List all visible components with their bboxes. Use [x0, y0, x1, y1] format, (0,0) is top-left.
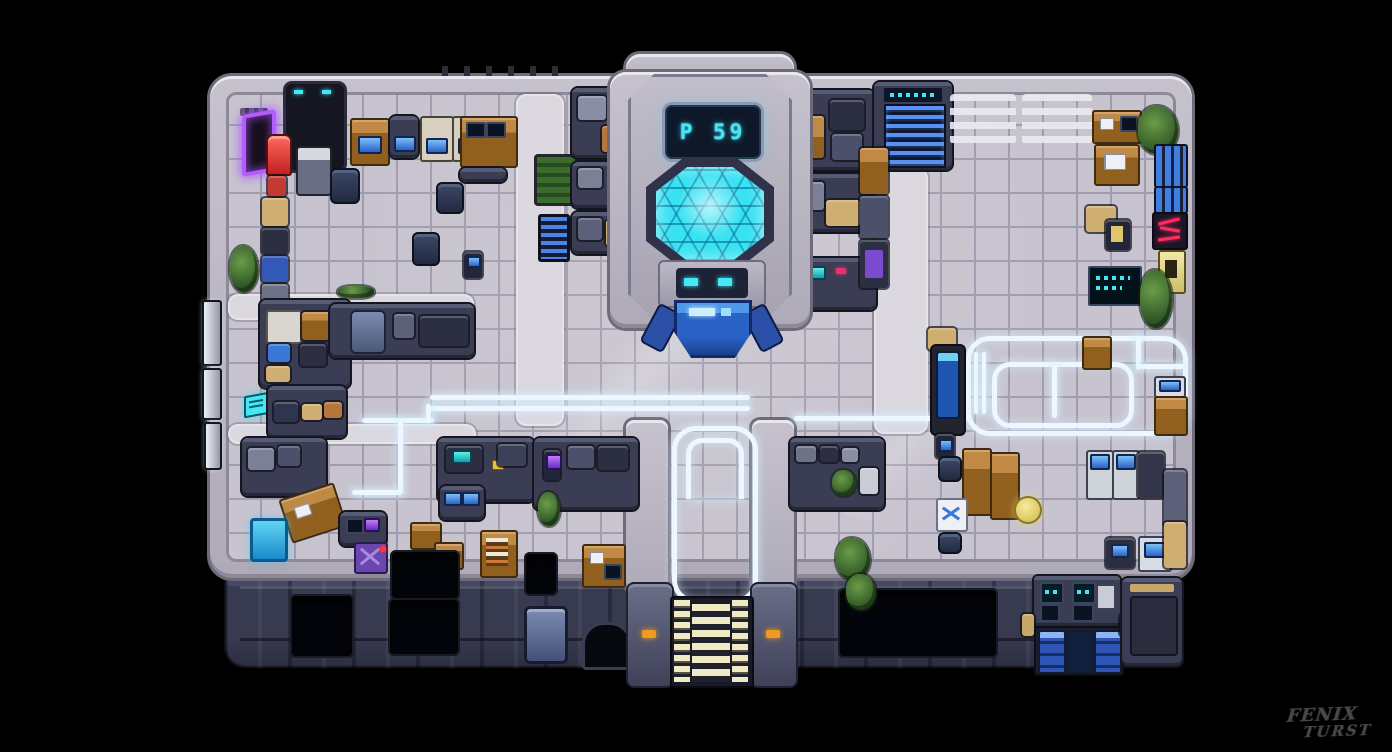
tram-line — [1140, 364, 1184, 369]
storage-locker-small[interactable] — [464, 252, 482, 278]
crate-blue — [268, 344, 290, 362]
holo-track-loop-inner — [992, 362, 1134, 428]
crate-tan — [324, 402, 342, 418]
washer-lid — [1116, 454, 1136, 470]
shelf-blue-bins[interactable] — [1154, 186, 1188, 214]
entrance-tower — [750, 582, 798, 688]
machine — [394, 314, 414, 338]
machine — [578, 168, 602, 188]
roof-antenna-ticks — [442, 66, 562, 76]
side-panel-tan — [1022, 614, 1034, 636]
graffiti-stroke — [1158, 217, 1180, 225]
exterior-module — [202, 300, 222, 366]
paper — [293, 503, 312, 519]
table-white — [936, 498, 968, 532]
sign-lines — [249, 404, 263, 408]
monitor-screen — [426, 138, 448, 154]
appliance — [796, 446, 816, 462]
locker-screen — [1072, 582, 1096, 604]
wall-terminal[interactable] — [1088, 266, 1142, 306]
machine — [578, 218, 602, 240]
monitor-screen — [444, 492, 462, 506]
washer[interactable] — [1086, 450, 1114, 500]
airlock-window — [721, 308, 731, 316]
locker[interactable] — [1094, 630, 1122, 674]
desk — [1094, 144, 1140, 186]
office-chair — [436, 182, 464, 214]
open-book — [1104, 154, 1126, 170]
stair-landing — [884, 88, 942, 102]
entrance-tower — [626, 582, 674, 688]
floor-opening — [390, 550, 460, 600]
large-desk — [460, 116, 518, 168]
cabinet — [832, 134, 862, 160]
holo-table-blue[interactable] — [250, 518, 288, 562]
ceiling-lamp — [294, 90, 303, 94]
machine-white[interactable] — [1154, 376, 1186, 398]
vending-machine[interactable] — [266, 134, 292, 176]
washer-lid — [1090, 454, 1110, 470]
entrance-corridor-outline-inner — [686, 438, 744, 499]
locker-screen — [1072, 604, 1094, 622]
monitor-screen — [546, 454, 562, 470]
facade-vent-arch — [582, 622, 632, 670]
cabinet — [830, 100, 864, 130]
screen-glyph — [1045, 590, 1057, 594]
sign-lines — [249, 399, 263, 403]
locker-open[interactable] — [1066, 630, 1094, 674]
machine — [598, 446, 628, 470]
couch — [330, 168, 360, 204]
tower-light — [642, 630, 656, 638]
console — [498, 444, 526, 466]
counter-room — [268, 386, 346, 438]
console-face — [676, 268, 748, 298]
cabinet — [860, 196, 888, 238]
tram-line — [426, 404, 431, 423]
potted-plant — [832, 470, 856, 496]
monitor-screen — [462, 492, 480, 506]
shrub — [338, 286, 374, 298]
game-map-scene: P 59 — [0, 0, 1392, 752]
purple-panel — [865, 250, 883, 278]
console-eye — [684, 278, 698, 286]
tram-line — [982, 352, 986, 414]
paper-desk — [266, 310, 302, 344]
tram-line — [430, 406, 750, 411]
laptop — [1120, 116, 1138, 132]
machine-dark — [1106, 538, 1134, 568]
desk — [582, 544, 626, 588]
appliance — [248, 448, 274, 470]
appliance — [842, 448, 858, 462]
machine-dark — [1138, 452, 1164, 498]
photo — [1111, 226, 1123, 242]
desk — [1092, 110, 1142, 144]
chair — [938, 532, 962, 554]
cabinet-panel — [1130, 596, 1178, 656]
floor-opening — [524, 552, 558, 596]
locker-emblem — [467, 256, 481, 268]
monitor — [486, 122, 506, 138]
bed — [296, 146, 332, 196]
facade-door[interactable] — [524, 606, 568, 664]
locker-screen — [1040, 604, 1060, 622]
chamber-numeric-display: P 59 — [665, 105, 761, 159]
potted-tree — [1140, 270, 1172, 328]
stair-rail-steps — [732, 600, 748, 682]
graffiti-stroke — [1158, 235, 1180, 241]
airlock-door[interactable] — [674, 300, 752, 358]
tram-line — [430, 395, 750, 400]
paper — [590, 552, 604, 564]
graffiti-stroke — [1160, 226, 1180, 232]
locker-bank-base — [1034, 626, 1124, 676]
cabinet-wood — [1154, 396, 1188, 436]
desk-with-monitors — [340, 512, 386, 546]
appliance — [820, 446, 838, 462]
console-eye — [718, 278, 732, 286]
tower-light — [766, 630, 780, 638]
cabinet-wood — [302, 312, 332, 340]
low-console — [460, 168, 506, 182]
machine — [568, 446, 594, 468]
status-led — [380, 546, 386, 552]
facade-opening — [290, 594, 354, 658]
metal-door[interactable] — [350, 310, 386, 354]
monitor-screen — [394, 136, 416, 152]
office-chair — [412, 232, 440, 266]
locker-screen — [1040, 582, 1064, 604]
machine-screen — [1144, 542, 1166, 558]
slatted-locker[interactable] — [538, 214, 570, 262]
mid-wall-room — [330, 304, 474, 358]
galley-room — [242, 438, 326, 496]
shelf-items — [486, 538, 508, 566]
crate — [262, 256, 288, 282]
counter-dark — [420, 316, 468, 346]
tram-line — [352, 490, 402, 495]
cyan-wall-sign — [244, 392, 270, 419]
elevator-pod[interactable] — [936, 351, 960, 419]
machine — [578, 96, 606, 120]
cabinet-wood — [860, 148, 888, 194]
shelf-blue-bins[interactable] — [1154, 144, 1188, 188]
crate-tan-tall — [1164, 522, 1186, 568]
landing-lights — [890, 93, 934, 97]
machine — [274, 402, 298, 422]
exterior-module — [202, 368, 222, 420]
neon-graffiti-panel — [1152, 212, 1188, 250]
airlock-window — [689, 308, 715, 316]
cabinet-trim — [1130, 584, 1174, 592]
crate — [262, 198, 288, 226]
washer[interactable] — [1112, 450, 1140, 500]
kiosk-screen — [939, 439, 953, 452]
tree — [836, 538, 870, 580]
laptop — [604, 564, 622, 580]
kitchen-room — [790, 438, 884, 510]
printer — [300, 344, 326, 366]
stair-rail-steps — [674, 600, 690, 682]
monitor-screen — [364, 518, 380, 532]
reactor-window — [656, 167, 764, 261]
desk-console — [390, 116, 418, 158]
tram-line — [398, 420, 403, 494]
utility-cabinet — [1122, 578, 1182, 666]
cabinet-tan — [826, 200, 860, 226]
cabinet-purple-door — [860, 240, 888, 288]
kiosk[interactable] — [936, 434, 954, 458]
utility-column — [1164, 470, 1186, 526]
paper — [1100, 118, 1114, 130]
upper-floor-stairs[interactable] — [884, 104, 946, 168]
desk-with-monitor — [350, 118, 390, 166]
machine-screen — [1111, 544, 1129, 558]
terminal-glyphs — [1096, 286, 1122, 290]
chair-wood — [1082, 336, 1112, 370]
ceiling-lamp — [322, 90, 331, 94]
signature-line-2: TURST — [1302, 722, 1392, 740]
holo-track-divider — [1052, 364, 1057, 418]
tram-line — [974, 352, 978, 414]
exterior-module — [204, 422, 222, 470]
facade-opening — [388, 598, 460, 656]
chamber-display-plate: P 59 — [662, 102, 764, 162]
photo-frame-box — [1106, 220, 1130, 250]
locker[interactable] — [1038, 630, 1066, 674]
monitor-wall-console — [440, 486, 484, 520]
tree — [846, 574, 876, 610]
crate-tan — [266, 366, 290, 382]
crate-tan — [302, 404, 322, 420]
monitor — [346, 518, 364, 534]
monitor — [466, 122, 486, 138]
screen-glyph — [1077, 590, 1089, 594]
entrance-corridor-wall-right — [752, 420, 794, 592]
crate — [262, 228, 288, 254]
stair-center-steps — [692, 604, 730, 682]
dispenser-slot — [1096, 584, 1116, 610]
status-chip — [836, 268, 846, 274]
fridge[interactable] — [860, 468, 878, 494]
chair — [938, 456, 962, 482]
locker-bank-top-panel — [1034, 576, 1120, 626]
crate — [268, 176, 286, 196]
potted-plant — [538, 492, 560, 526]
console-screen — [452, 450, 472, 464]
round-table-yellow — [1014, 496, 1042, 524]
bookshelf — [480, 530, 518, 578]
appliance — [278, 446, 300, 466]
artist-signature: FENIX TURST — [1284, 704, 1392, 741]
elevator-pod-frame — [930, 344, 966, 436]
potted-tree — [230, 246, 258, 292]
hazard-stripe-floor — [950, 94, 1016, 144]
hazard-stripe-floor — [1022, 94, 1092, 144]
terminal-glyphs — [1096, 276, 1130, 280]
machine-lid — [1159, 380, 1181, 392]
monitor-screen — [358, 136, 382, 154]
machine-slot — [1165, 260, 1177, 278]
desk-light — [420, 116, 454, 162]
main-entrance-stairs[interactable] — [670, 596, 754, 688]
